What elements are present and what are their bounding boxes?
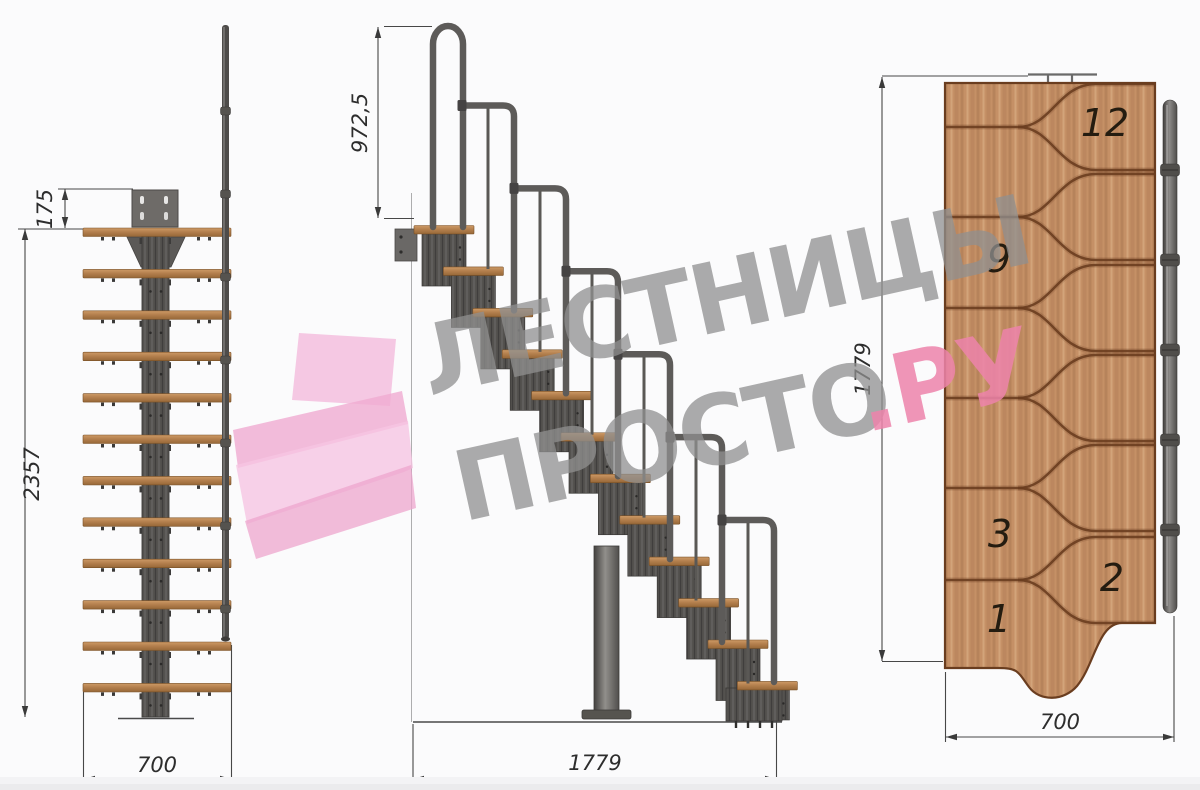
side-support-column (582, 546, 631, 719)
drawing-svg: 175 2357 700 (0, 0, 1200, 790)
top-handrail-tube (1161, 100, 1180, 613)
front-dim-width-label: 700 (137, 753, 177, 777)
watermark: ЛЕСТНИЦЫ ПРОСТО .РУ (233, 174, 1068, 559)
step-number-3: 3 (988, 512, 1012, 556)
side-dim-length-label: 1779 (568, 751, 621, 775)
step-number-2: 2 (1100, 556, 1124, 600)
bottom-strip-light (0, 777, 1200, 784)
watermark-logo (233, 333, 416, 559)
side-dim-rail-height-label: 972,5 (348, 93, 372, 153)
front-dim-height-label: 2357 (20, 447, 44, 501)
stairs-technical-drawing: 175 2357 700 (0, 0, 1200, 790)
front-wall-plate (132, 190, 178, 227)
front-handrail-post (221, 25, 231, 642)
front-dim-offset-label: 175 (33, 189, 57, 229)
step-number-1: 1 (987, 597, 1011, 641)
step-number-12: 12 (1081, 101, 1129, 145)
top-dim-width-label: 700 (1040, 710, 1080, 734)
side-wall-bracket (395, 229, 417, 261)
bottom-strip (0, 784, 1200, 790)
front-view: 175 2357 700 (18, 25, 232, 783)
